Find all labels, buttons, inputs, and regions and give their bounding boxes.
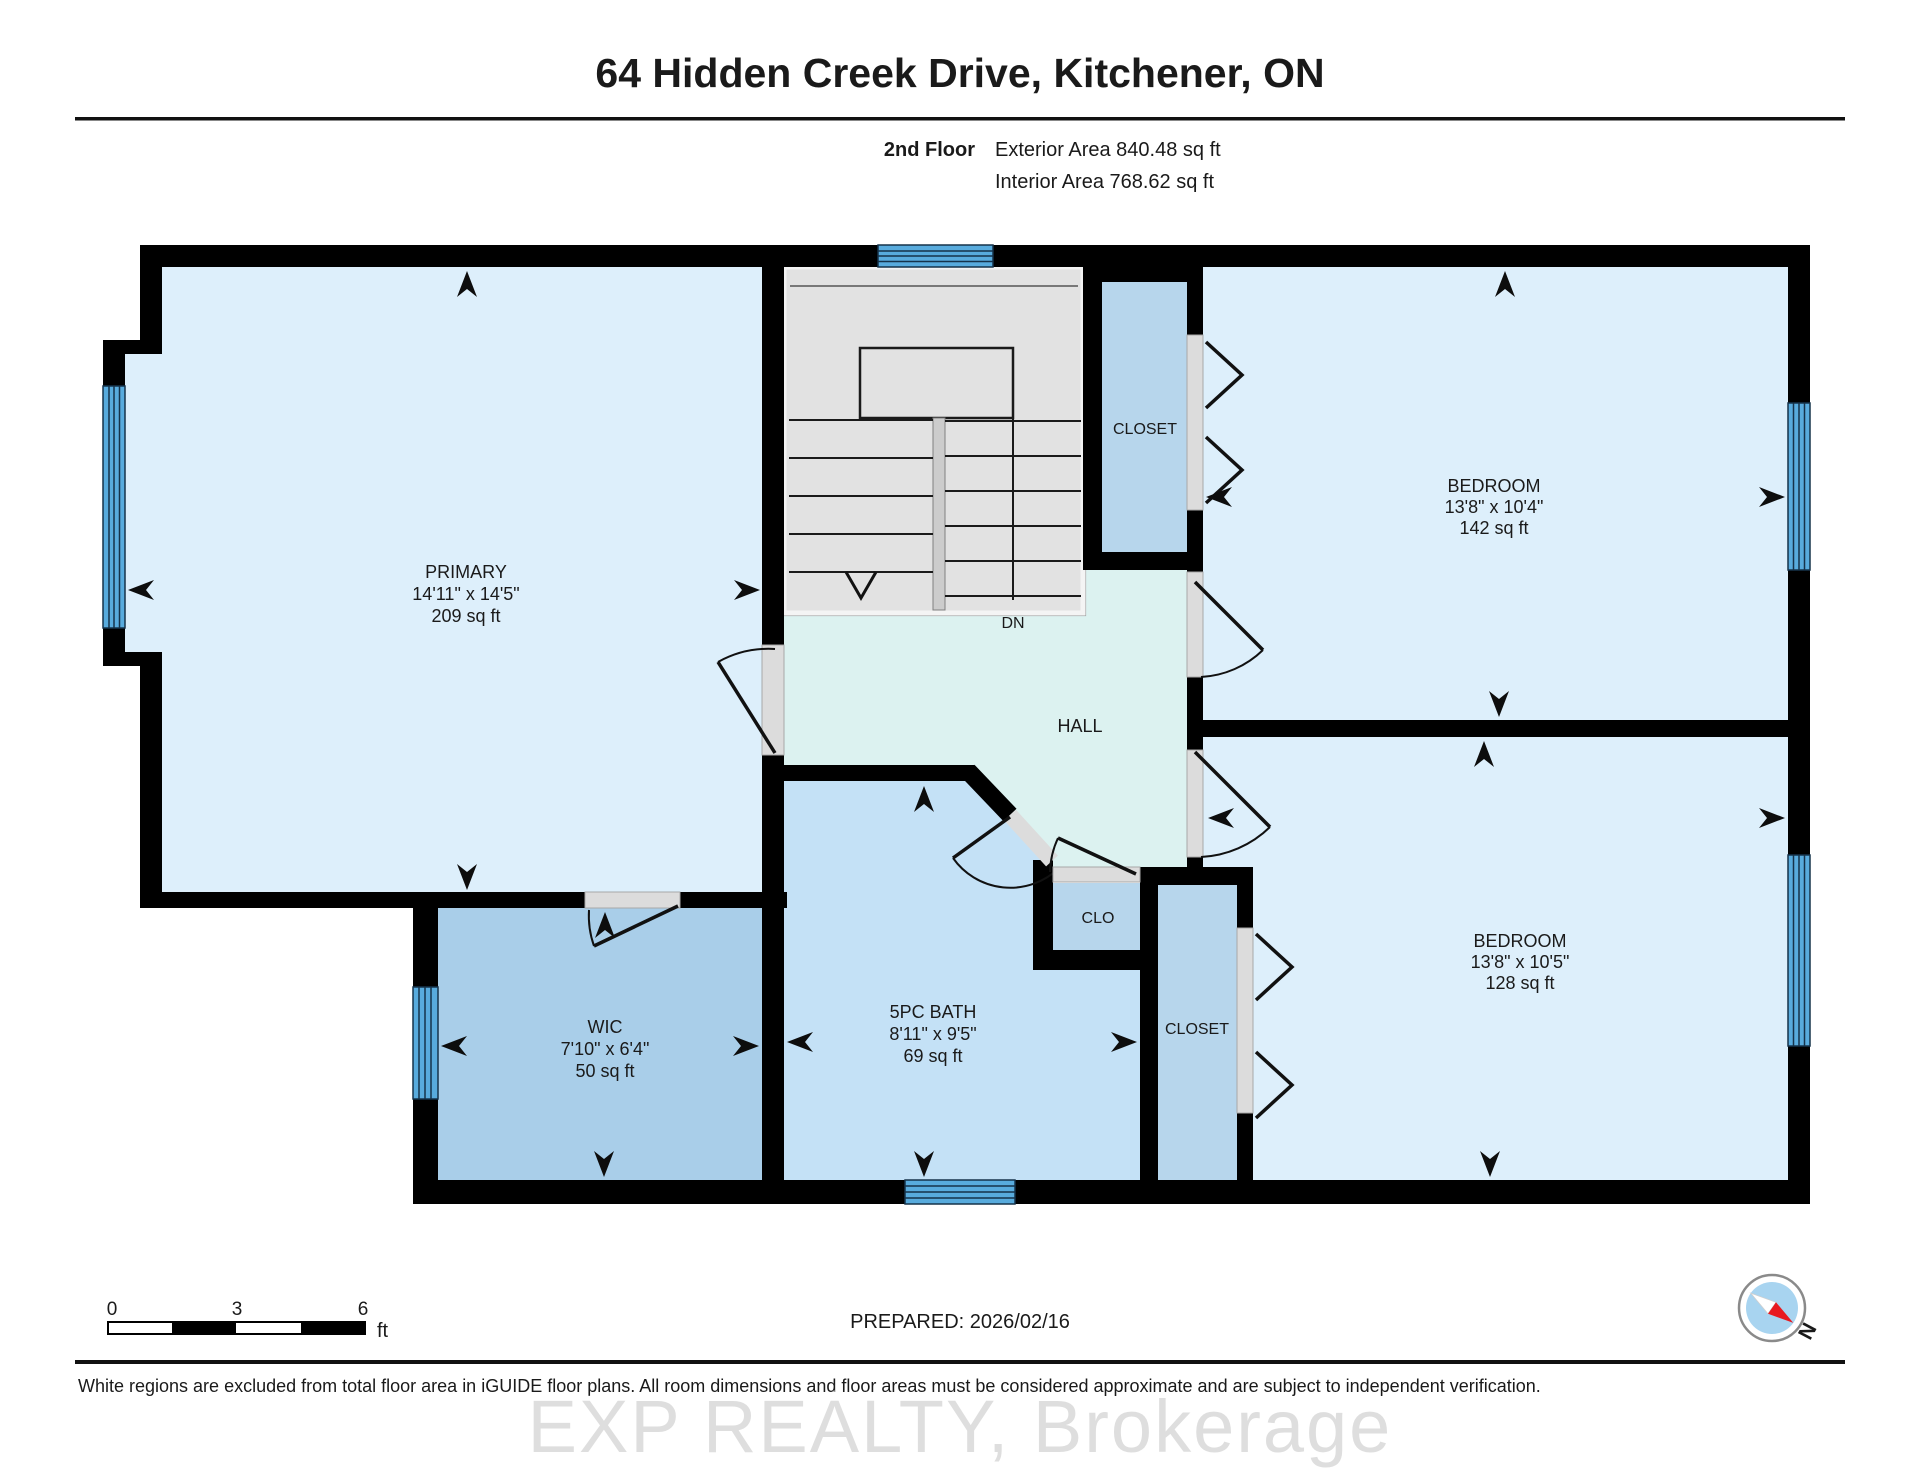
bath-dims: 8'11" x 9'5" <box>889 1024 976 1044</box>
bedroom-bottom-name: BEDROOM <box>1473 931 1566 951</box>
scale-bar-seg1 <box>172 1322 236 1334</box>
interior-area: Interior Area 768.62 sq ft <box>995 171 1214 193</box>
floor-plan-svg: 64 Hidden Creek Drive, Kitchener, ON 2nd… <box>0 0 1920 1484</box>
wic-dims: 7'10" x 6'4" <box>561 1039 650 1059</box>
clo-name: CLO <box>1082 910 1115 927</box>
window-top <box>878 245 993 267</box>
scale-unit: ft <box>377 1320 389 1342</box>
window-bottom <box>905 1180 1015 1204</box>
header-divider <box>75 117 1845 121</box>
prepared-date: PREPARED: 2026/02/16 <box>850 1311 1070 1333</box>
wic-name: WIC <box>588 1017 623 1037</box>
window-right-lower <box>1788 855 1810 1046</box>
bedroom-top-name: BEDROOM <box>1447 476 1540 496</box>
bedroom-top-dims: 13'8" x 10'4" <box>1445 497 1544 517</box>
stair-stringer <box>933 418 945 610</box>
bath-name: 5PC BATH <box>890 1002 977 1022</box>
primary-dims: 14'11" x 14'5" <box>412 584 519 604</box>
primary-name: PRIMARY <box>425 562 507 582</box>
scale-bar-seg2 <box>301 1322 365 1334</box>
bedroom-bottom-area: 128 sq ft <box>1485 973 1554 993</box>
scale-tick-0: 0 <box>107 1299 118 1320</box>
bath-area: 69 sq ft <box>903 1046 962 1066</box>
scale-tick-6: 6 <box>358 1299 369 1320</box>
window-right-upper <box>1788 403 1810 570</box>
scale-tick-3: 3 <box>232 1299 243 1320</box>
bedroom-bottom-dims: 13'8" x 10'5" <box>1471 952 1570 972</box>
staircase <box>782 265 1086 616</box>
closet-top-name: CLOSET <box>1113 421 1177 438</box>
bedroom-top-area: 142 sq ft <box>1459 518 1528 538</box>
compass: N <box>1739 1275 1820 1343</box>
primary-area: 209 sq ft <box>431 606 500 626</box>
window-wic-left <box>413 987 438 1099</box>
floor-plan-page: 64 Hidden Creek Drive, Kitchener, ON 2nd… <box>0 0 1920 1484</box>
window-bay-left <box>103 386 125 628</box>
wic-area: 50 sq ft <box>575 1061 634 1081</box>
exterior-area: Exterior Area 840.48 sq ft <box>995 139 1221 161</box>
closet-top-fill <box>1102 282 1187 552</box>
closet-bottom-name: CLOSET <box>1165 1021 1229 1038</box>
brokerage-watermark: EXP REALTY, Brokerage <box>528 1385 1393 1468</box>
hall-name: HALL <box>1057 716 1102 736</box>
stair-dn-label: DN <box>1001 615 1024 632</box>
footer-divider <box>75 1360 1845 1364</box>
scale-bar: 0 3 6 ft <box>107 1299 389 1342</box>
floor-label: 2nd Floor <box>884 139 975 161</box>
page-title: 64 Hidden Creek Drive, Kitchener, ON <box>595 50 1324 96</box>
